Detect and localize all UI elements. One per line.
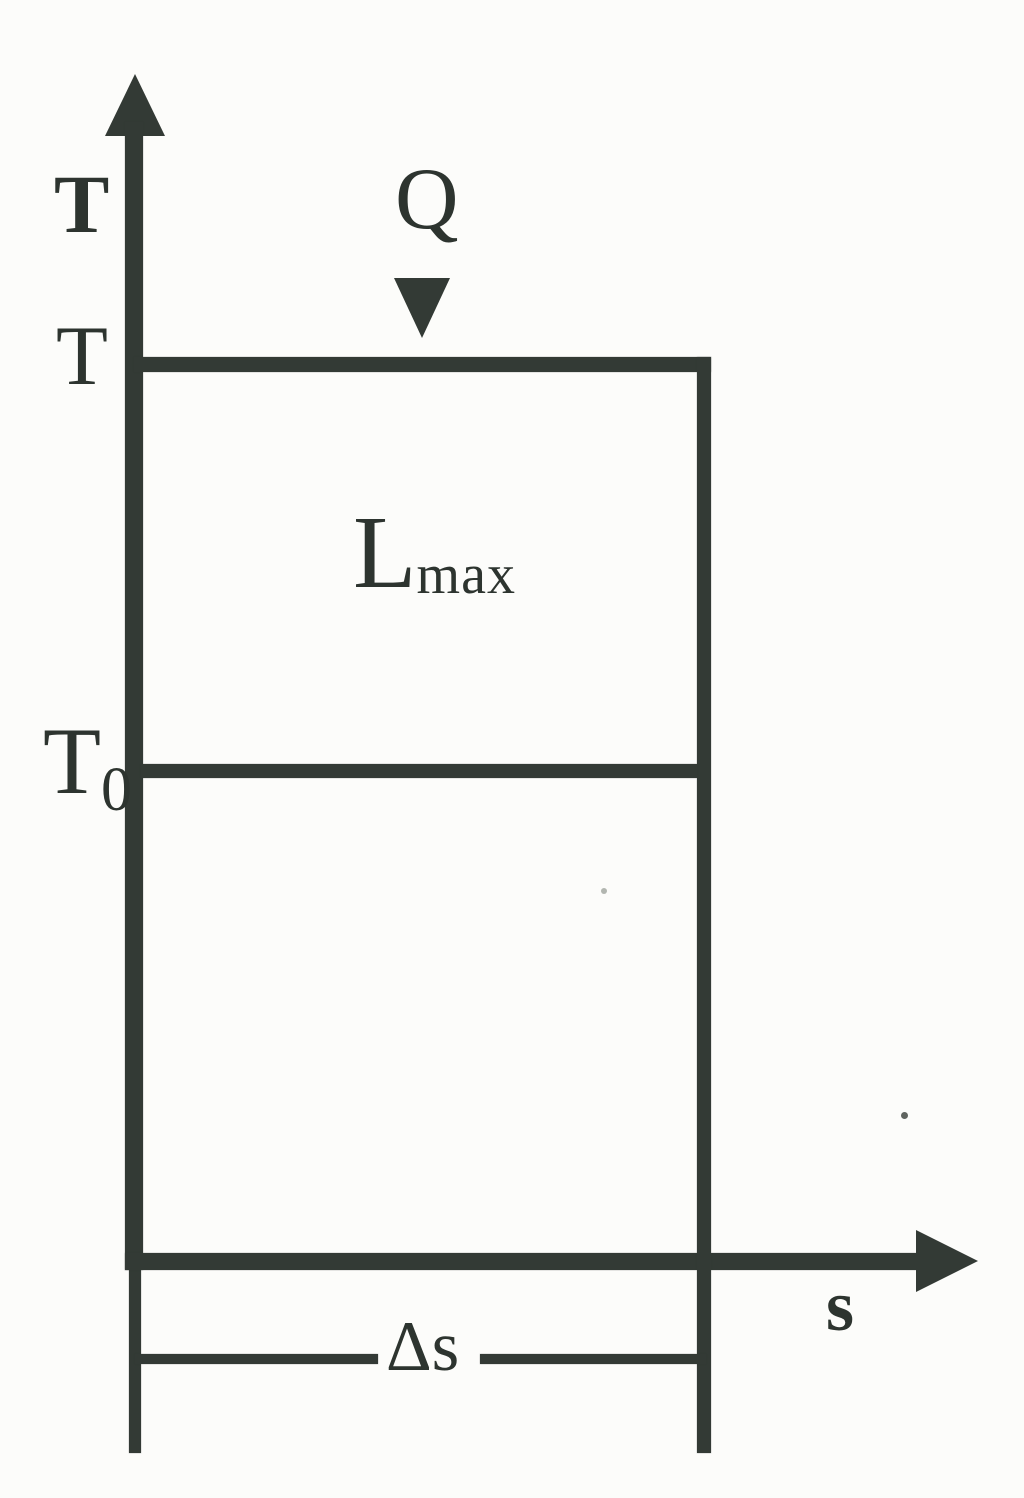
scan-speck: [901, 1112, 908, 1119]
ambient-temperature-tick-label: T0: [43, 714, 132, 809]
x-axis-line: [125, 1253, 919, 1270]
ambient-temperature-label-subscript: 0: [101, 756, 132, 824]
delta-s-dimension-line-left: [135, 1354, 378, 1364]
x-axis-label: s: [826, 1270, 854, 1342]
rect-right-line: [697, 357, 711, 1453]
heat-label: Q: [395, 156, 459, 244]
max-work-label: Lmax: [353, 501, 516, 605]
upper-temperature-tick-label: T: [56, 314, 108, 399]
max-work-label-subscript: max: [417, 544, 516, 606]
delta-s-label: Δs: [386, 1312, 459, 1383]
upper-isotherm-line: [134, 357, 711, 372]
y-axis-label: T: [54, 163, 109, 246]
x-axis-arrowhead-icon: [916, 1230, 978, 1292]
delta-s-dimension-line-right: [480, 1354, 706, 1364]
y-axis-line: [125, 122, 143, 1270]
max-work-label-base: L: [353, 495, 417, 610]
t0-isotherm-line: [141, 764, 697, 778]
scan-speck: [601, 888, 607, 894]
scanned-figure-page: T T Q Lmax T0 Δs s: [0, 0, 1024, 1498]
ambient-temperature-label-base: T: [43, 708, 101, 814]
heat-arrow-icon: [394, 278, 450, 338]
